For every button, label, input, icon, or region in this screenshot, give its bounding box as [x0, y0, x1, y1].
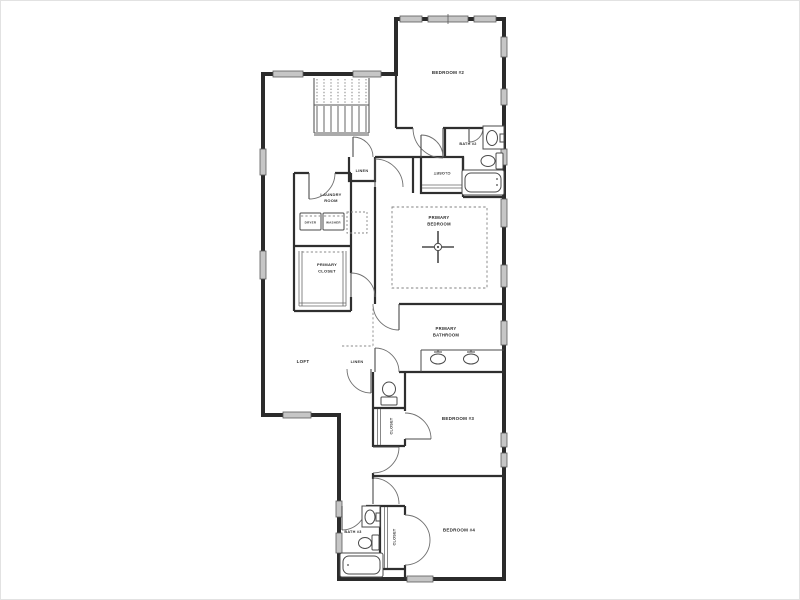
- floor-plan-drawing: DRYER WASHER: [1, 1, 800, 600]
- bedroom4-closet-label: CLOSET: [393, 528, 397, 545]
- room-labels: BEDROOM #2 BATH #2 CLOSET LINEN LAUNDRY …: [297, 70, 477, 545]
- bedroom3-label: BEDROOM #3: [442, 416, 475, 421]
- primary-bath-fixtures: [381, 350, 504, 405]
- windows: [260, 14, 507, 582]
- bath3-fixtures: [340, 506, 383, 577]
- washer-label: WASHER: [326, 221, 341, 225]
- hall-closet-label: CLOSET: [433, 171, 450, 175]
- primary-bedroom-label-line1: PRIMARY: [429, 215, 450, 220]
- bath3-label: BATH #3: [344, 530, 361, 534]
- bath2-toilet: [481, 153, 503, 169]
- bath2-fixtures: [462, 126, 504, 195]
- ceiling-fan-icon: [422, 231, 454, 263]
- bath3-faucet: [376, 513, 380, 521]
- loft-label: LOFT: [297, 359, 310, 364]
- primary-wc-toilet: [381, 382, 397, 405]
- primary-sink-right: [464, 354, 479, 364]
- primary-closet-label-line1: PRIMARY: [317, 262, 337, 267]
- linen-upper-label: LINEN: [356, 169, 369, 173]
- linen-lower-label: LINEN: [351, 360, 364, 364]
- bath3-sink: [365, 510, 375, 524]
- laundry-appliances: DRYER WASHER: [300, 212, 367, 233]
- bath2-faucet: [500, 134, 504, 142]
- floor-plan-image: DRYER WASHER: [0, 0, 800, 600]
- dryer-label: DRYER: [305, 221, 317, 225]
- bedroom3-closet-label: CLOSET: [390, 417, 394, 434]
- bath2-label: BATH #2: [459, 142, 476, 146]
- bath2-sink: [487, 131, 498, 146]
- laundry-label-line2: ROOM: [324, 198, 338, 203]
- primary-bathroom-label-line1: PRIMARY: [436, 326, 457, 331]
- primary-sink-left: [431, 354, 446, 364]
- laundry-label-line1: LAUNDRY: [320, 192, 341, 197]
- bath3-bathtub: [340, 553, 383, 577]
- bath2-bathtub: [462, 170, 504, 195]
- primary-bedroom-label-line2: BEDROOM: [427, 222, 451, 227]
- bath3-toilet: [359, 535, 380, 550]
- bedroom4-label: BEDROOM #4: [443, 528, 476, 533]
- primary-bathroom-label-line2: BATHROOM: [433, 333, 460, 338]
- primary-closet-label-line2: CLOSET: [318, 269, 336, 274]
- bedroom2-label: BEDROOM #2: [432, 70, 465, 75]
- staircase: [314, 78, 369, 135]
